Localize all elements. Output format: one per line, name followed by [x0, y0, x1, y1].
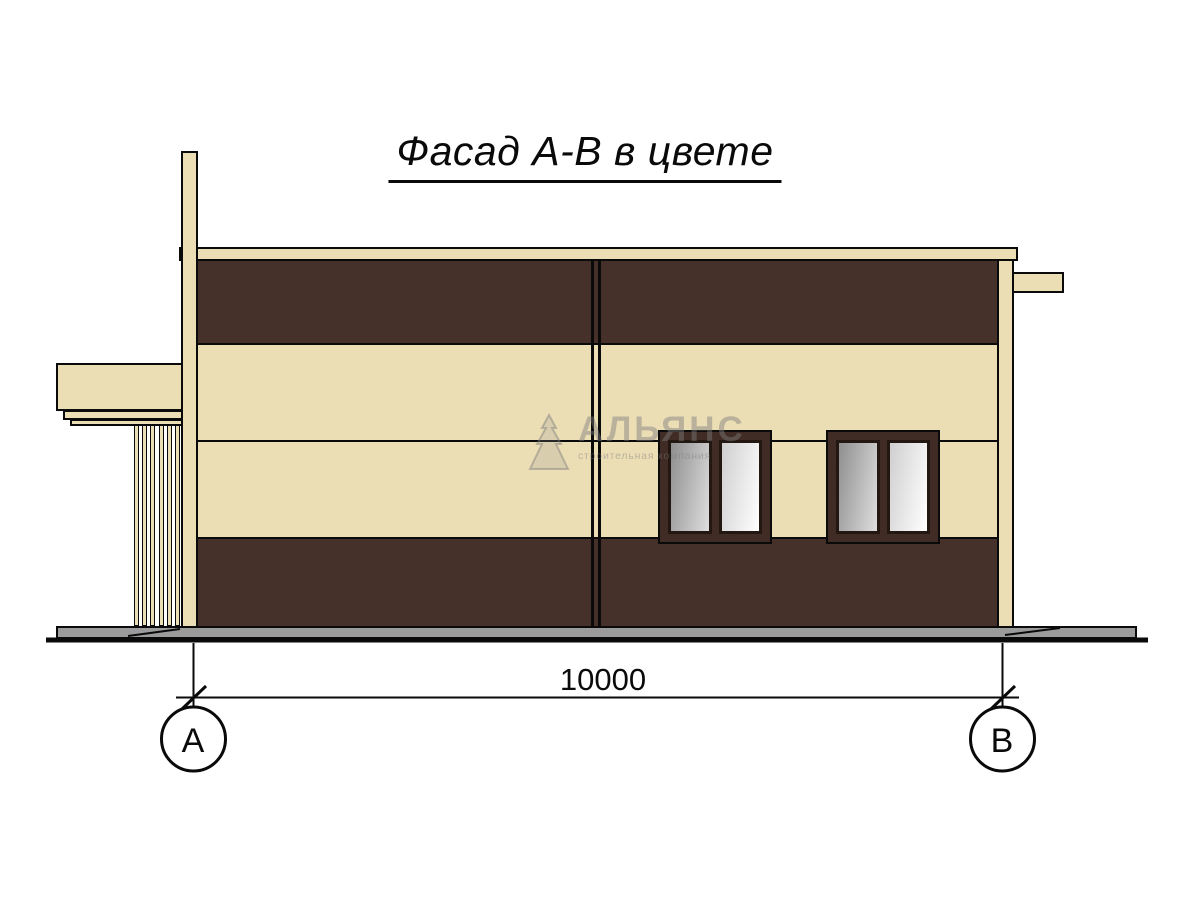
porch-slat [134, 425, 139, 626]
right-corner-post [997, 259, 1014, 630]
porch-slat [142, 425, 147, 626]
axis-label-b: В [970, 722, 1034, 761]
porch-slat [175, 425, 180, 626]
porch-slat-screen [134, 425, 180, 626]
dimension-value: 10000 [453, 662, 753, 698]
axis-label-a: А [161, 722, 225, 761]
window-pane [719, 440, 763, 534]
roof-beam-right [1010, 272, 1064, 293]
panel-joint-line [598, 259, 601, 630]
dimension-tick [182, 686, 206, 709]
roof-fascia-band [179, 247, 1018, 261]
elevation-drawing: АЛЬЯНС строительная компания 10000 А В [0, 0, 1200, 900]
window-pane [887, 440, 931, 534]
ground-slab [56, 626, 1137, 639]
left-corner-post [181, 151, 198, 630]
window [658, 430, 772, 544]
window-pane [836, 440, 880, 534]
panel-joint-line [591, 259, 594, 630]
porch-slat [167, 425, 172, 626]
page-title: Фасад А-В в цвете [388, 128, 781, 183]
porch-canopy [56, 363, 183, 411]
porch-slat [150, 425, 155, 626]
porch-slat [159, 425, 164, 626]
dimension-tick [991, 686, 1015, 709]
window [826, 430, 940, 544]
window-pane [668, 440, 712, 534]
